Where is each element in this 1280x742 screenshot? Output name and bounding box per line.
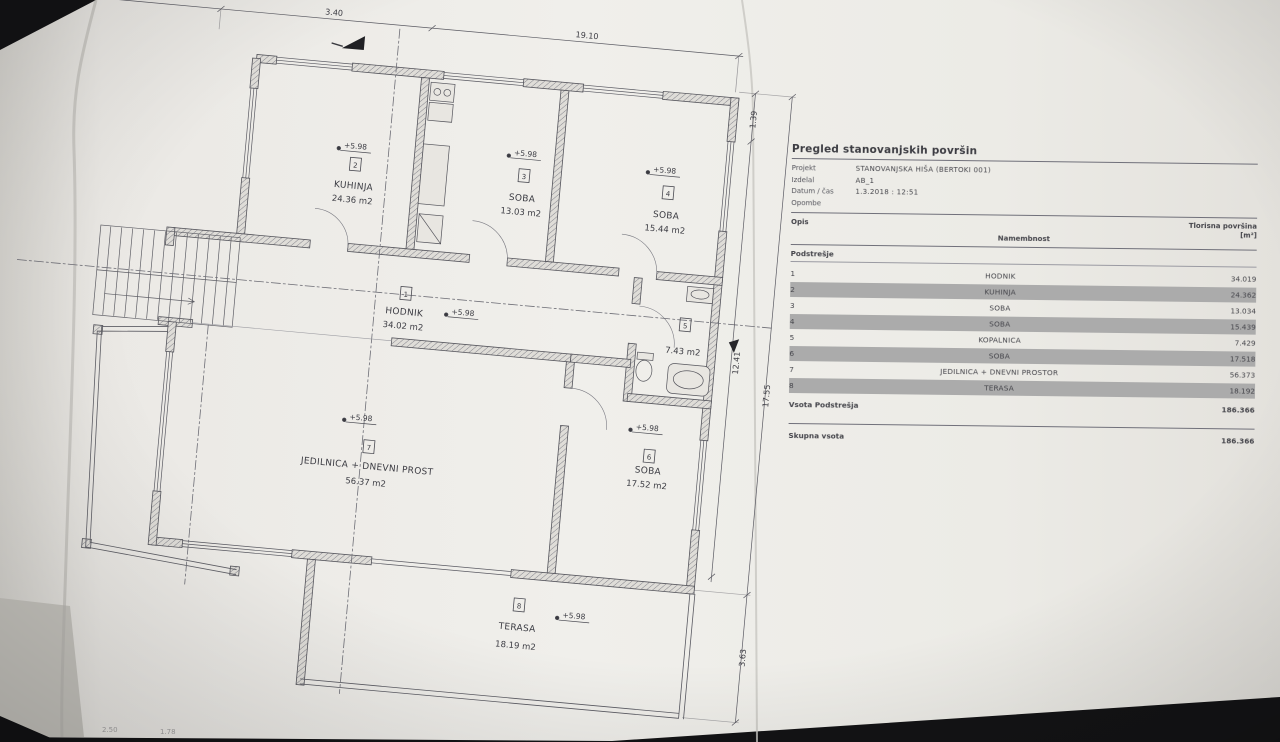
floor-plan-photo: 6.10 3.40 19.10 1.39 12.41 17.55 3.63: [0, 0, 1280, 742]
svg-text:+5.98: +5.98: [635, 422, 659, 433]
bathroom-fixtures: [634, 282, 717, 396]
svg-text:JEDILNICA + DNEVNI PROST: JEDILNICA + DNEVNI PROST: [299, 456, 434, 478]
svg-text:1: 1: [403, 291, 408, 299]
dimension-top: [58, 0, 743, 92]
north-arrow-icon: [332, 33, 365, 50]
svg-text:4: 4: [665, 190, 671, 198]
svg-text:15.44 m2: 15.44 m2: [644, 223, 685, 237]
svg-text:6: 6: [646, 453, 652, 461]
svg-text:34.02 m2: 34.02 m2: [382, 320, 423, 334]
dim-right-4: 3.63: [737, 649, 748, 668]
svg-text:2: 2: [353, 162, 358, 170]
svg-text:13.03 m2: 13.03 m2: [500, 206, 541, 220]
svg-text:+5.98: +5.98: [349, 412, 373, 423]
svg-text:7: 7: [366, 444, 371, 452]
svg-text:HODNIK: HODNIK: [385, 306, 424, 319]
svg-text:5: 5: [683, 322, 688, 330]
svg-text:18.19 m2: 18.19 m2: [495, 639, 536, 653]
svg-text:SOBA: SOBA: [634, 465, 662, 477]
svg-text:+5.98: +5.98: [562, 610, 586, 621]
svg-text:+5.98: +5.98: [514, 148, 538, 159]
balcony-railing: [76, 320, 257, 575]
dim-right-1: 1.39: [748, 110, 759, 129]
svg-text:KUHINJA: KUHINJA: [333, 180, 373, 194]
svg-text:SOBA: SOBA: [508, 193, 536, 205]
dim-top-2: 3.40: [325, 7, 344, 18]
hodnik-opening-line: [192, 323, 391, 341]
svg-text:8: 8: [516, 602, 521, 610]
dim-top-1: 6.10: [143, 0, 162, 1]
dim-top-3: 19.10: [575, 30, 599, 41]
svg-text:+5.98: +5.98: [653, 165, 677, 176]
svg-text:7.43 m2: 7.43 m2: [665, 346, 701, 359]
dim-right-2: 12.41: [731, 351, 742, 375]
svg-text:+5.98: +5.98: [344, 141, 368, 152]
windows: [149, 50, 738, 593]
walls: [63, 42, 739, 720]
svg-text:TERASA: TERASA: [497, 622, 536, 635]
dim-right-3: 17.55: [761, 384, 772, 408]
svg-text:SOBA: SOBA: [652, 210, 680, 222]
svg-text:+5.98: +5.98: [451, 307, 475, 318]
svg-text:3: 3: [521, 173, 526, 181]
room-schedule: Pregled stanovanjskih površin Projekt ST…: [788, 143, 1258, 449]
svg-text:56.37 m2: 56.37 m2: [345, 476, 386, 490]
svg-text:24.36 m2: 24.36 m2: [331, 194, 372, 208]
schedule-column-headers: Opis Namembnost Tlorisna površina [m²]: [791, 217, 1257, 247]
svg-text:17.52 m2: 17.52 m2: [626, 479, 667, 493]
